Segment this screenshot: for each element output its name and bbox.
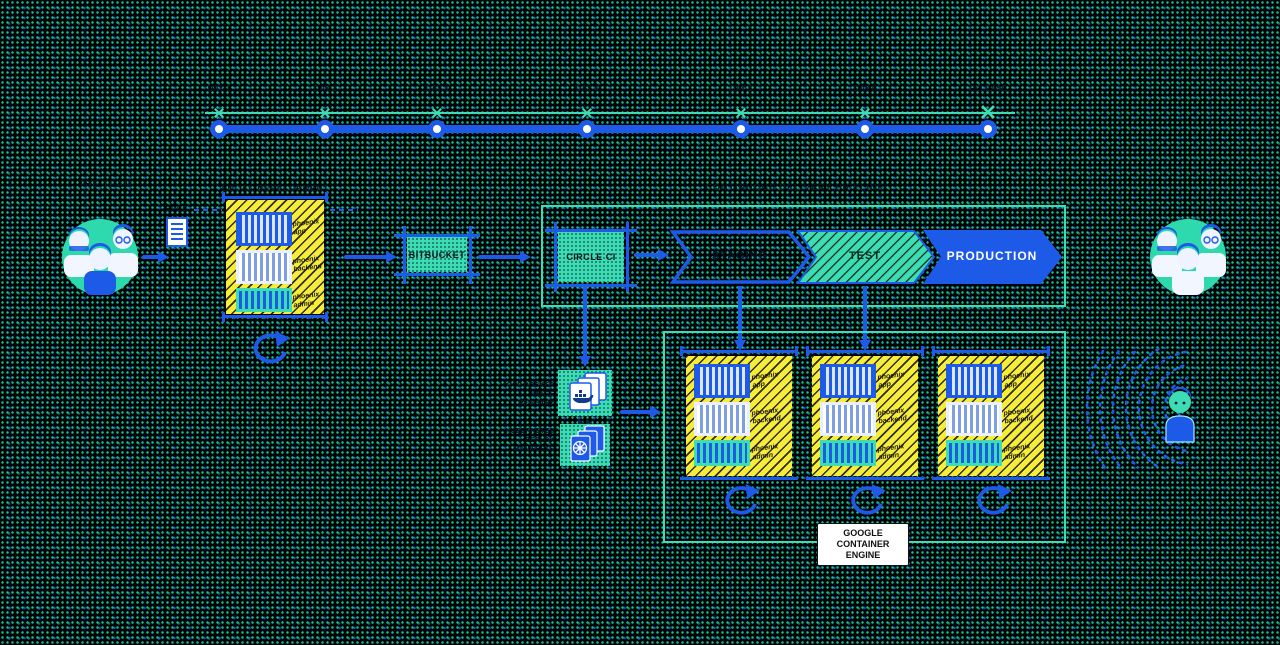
container-icon-backend [236, 250, 292, 284]
staging-label: STAGING [695, 250, 785, 262]
circleci-label: CIRCLE CI [556, 252, 626, 262]
timeline-day-label: DAY 4 [552, 84, 622, 93]
kubernetes-wheel-icon [560, 424, 610, 466]
dashed-guide [330, 209, 358, 211]
bracket-cap [680, 346, 683, 356]
container-icon-backend [820, 402, 876, 436]
k8s-manifests-label: KUBERNETES DEPLOY MANIFESTS [498, 427, 554, 454]
bracket-top [680, 350, 798, 353]
refresh-loop-icon [843, 483, 887, 519]
k8s-manifests-tile [560, 424, 610, 466]
registry-label-line: MANIFESTS [498, 445, 554, 454]
bracket-cap [325, 192, 328, 202]
bracket-cap [795, 346, 798, 356]
arrow-head-down [579, 356, 591, 367]
tile-link-icon [576, 414, 596, 422]
cut-mark-icon [581, 107, 593, 119]
timeline-day-label: DAY 5 [706, 84, 776, 93]
pipeline-diagram: DAY 1 DAY 2 DAY 3 DAY 4 DAY 5 DAY 6 RELE… [0, 0, 1280, 645]
timeline-node-center [984, 125, 992, 133]
timeline-node-center [737, 125, 745, 133]
local-env-label: LOCAL DEVELOPMENT [218, 184, 333, 193]
timeline-node-center [321, 125, 329, 133]
registry-label-line: REGISTRY [498, 399, 554, 408]
arrow-registry-to-gke [620, 410, 652, 414]
registry-label-line: KUBERNETES [498, 427, 554, 436]
bracket-cap [222, 312, 225, 322]
bracket-top [222, 196, 328, 199]
team-section-label: THE TEAM [48, 179, 163, 189]
dev-team-right [1144, 213, 1232, 299]
bracket-bottom [222, 315, 328, 318]
arrow-head [520, 251, 531, 263]
bracket-cap [222, 192, 225, 202]
dev-team-left [56, 213, 144, 299]
bracket-cap [921, 346, 924, 356]
registry-label-line: GCP DOCKER [498, 381, 554, 390]
end-user-icon [1162, 386, 1198, 444]
container-label: phoenix app [292, 217, 334, 238]
registry-label-line: DEPLOY [498, 436, 554, 445]
container-icon-app [236, 212, 292, 246]
bracket-cap [325, 312, 328, 322]
timeline-day-label: DAY 2 [290, 84, 360, 93]
container-label: phoenix backend [292, 254, 334, 275]
cut-mark-icon [319, 107, 331, 119]
container-icon-backend [694, 402, 750, 436]
cut-mark-icon [431, 107, 443, 119]
bracket-cap [806, 346, 809, 356]
container-icon-backend [946, 402, 1002, 436]
arrow-bitbucket-to-pipeline [478, 255, 522, 259]
bracket-top [932, 350, 1050, 353]
arrow-ci-to-stages [634, 253, 660, 257]
bracket-bottom [806, 477, 924, 480]
container-icon-admin [946, 440, 1002, 466]
connector-ci-to-registry [583, 284, 587, 358]
refresh-loop-icon [717, 483, 761, 519]
docker-registry-label: GCP DOCKER IMAGE REGISTRY [498, 381, 554, 408]
cut-mark-icon [980, 104, 997, 121]
spec-document-icon [166, 217, 188, 247]
container-icon-app [694, 364, 750, 398]
timeline-day-label: RELEASE [953, 84, 1023, 93]
crop-mark [394, 273, 480, 276]
bracket-bottom [680, 477, 798, 480]
dashed-guide [194, 209, 222, 211]
timeline-day-label: DAY 1 [184, 84, 254, 93]
timeline-node-center [433, 125, 441, 133]
refresh-loop-icon [969, 483, 1013, 519]
crop-mark [626, 222, 629, 292]
docker-images-tile [558, 370, 612, 416]
cut-mark-icon [735, 107, 747, 119]
gke-label: GOOGLE CONTAINER ENGINE [817, 523, 909, 566]
timeline-node-center [861, 125, 869, 133]
bracket-bottom [932, 477, 1050, 480]
arrow-head [386, 251, 397, 263]
container-icon-app [820, 364, 876, 398]
timeline-node-center [215, 125, 223, 133]
pipeline-title-label: CONTINUOUS DELIVERY PIPELINE [660, 182, 930, 192]
timeline-day-label: DAY 3 [402, 84, 472, 93]
sprint-timeline: DAY 1 DAY 2 DAY 3 DAY 4 DAY 5 DAY 6 RELE… [0, 0, 1280, 160]
crop-mark [545, 284, 637, 287]
arrow-env-to-bitbucket [344, 255, 388, 259]
bitbucket-label: BITBUCKET [405, 250, 469, 260]
docker-whale-icon [558, 370, 612, 416]
container-icon-app [946, 364, 1002, 398]
cut-mark-icon [859, 107, 871, 119]
timeline-node-center [583, 125, 591, 133]
bracket-top [806, 350, 924, 353]
bracket-cap [932, 346, 935, 356]
arrow-head [158, 251, 169, 263]
production-label: PRODUCTION [932, 249, 1052, 263]
container-icon-admin [236, 288, 292, 312]
refresh-loop-icon [246, 330, 290, 368]
registry-label-line: IMAGE [498, 390, 554, 399]
spec-label: SPEC [158, 206, 196, 213]
arrow-head [650, 406, 661, 418]
timeline-day-label: DAY 6 [830, 84, 900, 93]
container-label: phoenix admin [292, 290, 334, 311]
cut-mark-icon [213, 107, 225, 119]
bracket-cap [1047, 346, 1050, 356]
container-icon-admin [694, 440, 750, 466]
test-label: TEST [820, 250, 910, 262]
container-icon-admin [820, 440, 876, 466]
arrow-head [658, 249, 669, 261]
